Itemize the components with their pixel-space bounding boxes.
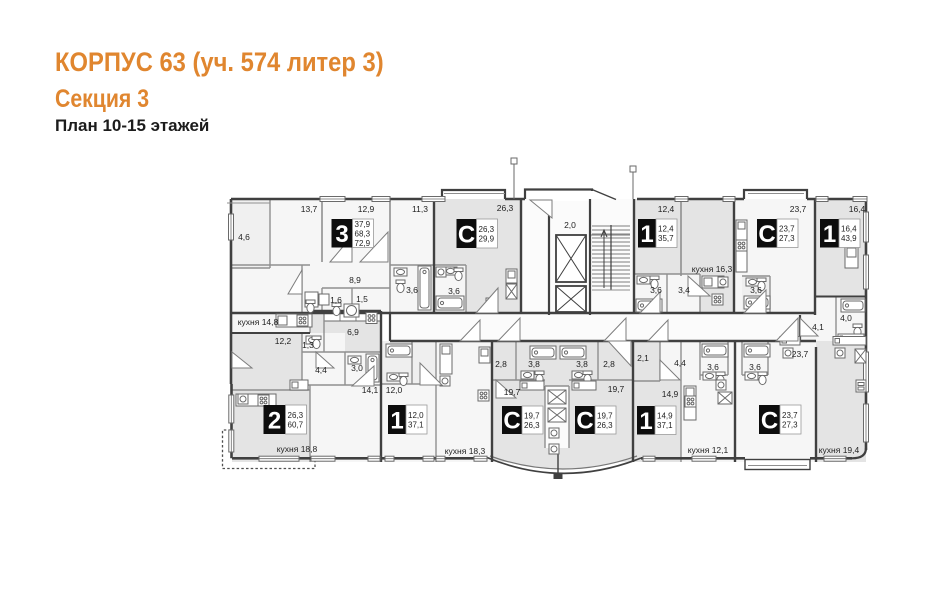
svg-text:4,4: 4,4 — [674, 358, 686, 368]
svg-text:3,6: 3,6 — [448, 286, 460, 296]
svg-text:8,9: 8,9 — [349, 275, 361, 285]
svg-text:19,7: 19,7 — [524, 411, 540, 420]
svg-text:1,3: 1,3 — [302, 340, 314, 350]
svg-text:3,6: 3,6 — [406, 285, 418, 295]
svg-text:12,2: 12,2 — [275, 336, 292, 346]
svg-text:43,9: 43,9 — [841, 234, 857, 243]
svg-text:1: 1 — [640, 221, 653, 248]
svg-text:С: С — [503, 408, 520, 435]
svg-text:2,8: 2,8 — [603, 359, 615, 369]
svg-text:3: 3 — [335, 221, 348, 248]
svg-text:27,3: 27,3 — [782, 420, 798, 429]
svg-text:С: С — [758, 221, 775, 248]
svg-text:11,3: 11,3 — [412, 204, 428, 214]
svg-text:1: 1 — [823, 221, 836, 248]
svg-text:1,6: 1,6 — [330, 295, 342, 305]
svg-text:26,3: 26,3 — [479, 225, 495, 234]
svg-text:35,7: 35,7 — [658, 234, 674, 243]
svg-text:16,4: 16,4 — [849, 204, 866, 214]
svg-text:26,3: 26,3 — [497, 203, 514, 213]
svg-text:кухня 14,8: кухня 14,8 — [238, 317, 279, 327]
svg-text:16,4: 16,4 — [841, 225, 857, 234]
svg-text:кухня 18,3: кухня 18,3 — [445, 446, 486, 456]
svg-text:23,7: 23,7 — [792, 349, 809, 359]
svg-text:14,9: 14,9 — [662, 389, 679, 399]
svg-text:1: 1 — [390, 408, 403, 435]
svg-text:кухня 12,1: кухня 12,1 — [688, 445, 729, 455]
svg-text:23,7: 23,7 — [779, 225, 795, 234]
svg-text:72,9: 72,9 — [355, 239, 371, 248]
svg-text:23,7: 23,7 — [782, 411, 798, 420]
svg-text:кухня 18,8: кухня 18,8 — [277, 444, 318, 454]
svg-text:3,6: 3,6 — [707, 362, 719, 372]
svg-text:4,1: 4,1 — [812, 322, 824, 332]
svg-text:С: С — [761, 408, 778, 435]
svg-text:23,7: 23,7 — [790, 204, 807, 214]
svg-text:3,8: 3,8 — [528, 359, 540, 369]
svg-text:С: С — [458, 222, 475, 249]
svg-text:68,3: 68,3 — [355, 229, 371, 238]
svg-text:12,0: 12,0 — [386, 385, 403, 395]
svg-text:26,3: 26,3 — [597, 421, 613, 430]
svg-text:27,3: 27,3 — [779, 234, 795, 243]
svg-text:4,6: 4,6 — [238, 232, 250, 242]
svg-text:6,9: 6,9 — [347, 327, 359, 337]
svg-text:14,1: 14,1 — [362, 385, 379, 395]
svg-text:26,3: 26,3 — [524, 421, 540, 430]
svg-text:19,7: 19,7 — [504, 387, 521, 397]
svg-text:3,8: 3,8 — [576, 359, 588, 369]
svg-text:3,6: 3,6 — [650, 285, 662, 295]
svg-text:3,6: 3,6 — [750, 285, 762, 295]
svg-text:4,4: 4,4 — [315, 365, 327, 375]
svg-text:кухня 16,3: кухня 16,3 — [692, 264, 733, 274]
svg-text:12,4: 12,4 — [658, 225, 674, 234]
svg-text:кухня 19,4: кухня 19,4 — [819, 445, 860, 455]
svg-text:29,9: 29,9 — [479, 234, 495, 243]
svg-text:С: С — [576, 408, 593, 435]
svg-text:26,3: 26,3 — [288, 411, 304, 420]
svg-text:37,1: 37,1 — [657, 421, 673, 430]
svg-text:19,7: 19,7 — [597, 411, 613, 420]
svg-text:14,9: 14,9 — [657, 412, 673, 421]
svg-text:2,0: 2,0 — [564, 220, 576, 230]
svg-text:1: 1 — [639, 408, 652, 435]
svg-text:19,7: 19,7 — [608, 384, 625, 394]
svg-text:12,9: 12,9 — [358, 204, 375, 214]
svg-text:37,9: 37,9 — [355, 220, 371, 229]
svg-text:13,7: 13,7 — [301, 204, 318, 214]
svg-text:37,1: 37,1 — [408, 420, 424, 429]
svg-text:1,5: 1,5 — [356, 294, 368, 304]
svg-text:12,0: 12,0 — [408, 411, 424, 420]
svg-text:2,8: 2,8 — [495, 359, 507, 369]
svg-text:4,0: 4,0 — [840, 313, 852, 323]
svg-text:3,0: 3,0 — [351, 363, 363, 373]
svg-text:3,4: 3,4 — [678, 285, 690, 295]
svg-text:2,1: 2,1 — [637, 353, 649, 363]
svg-text:2: 2 — [268, 408, 281, 435]
svg-text:60,7: 60,7 — [288, 420, 304, 429]
svg-text:12,4: 12,4 — [658, 204, 675, 214]
svg-text:3,6: 3,6 — [749, 362, 761, 372]
